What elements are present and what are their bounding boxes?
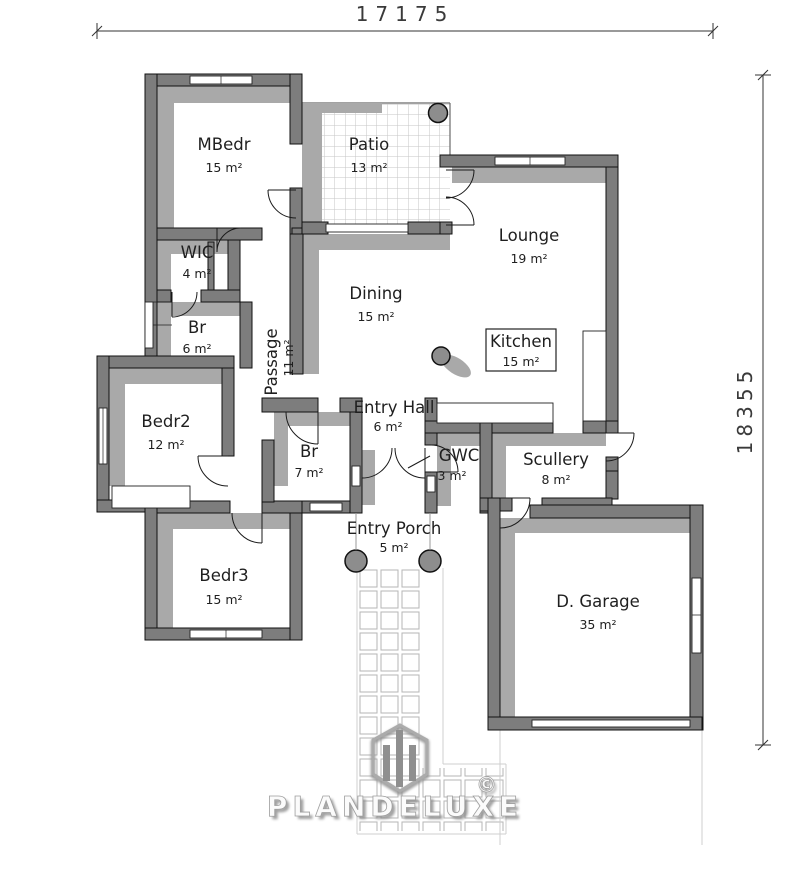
room-label-patio: Patio xyxy=(349,135,389,154)
room-area-bedr2: 12 m² xyxy=(147,437,184,452)
room-label-scullery: Scullery xyxy=(523,450,589,469)
room-label-bedr3: Bedr3 xyxy=(199,566,248,585)
room-label-mbedr: MBedr xyxy=(198,135,251,154)
room-area-dining: 15 m² xyxy=(357,309,394,324)
room-area-patio: 13 m² xyxy=(350,160,387,175)
room-label-bedr2: Bedr2 xyxy=(141,412,190,431)
room-area-passage: 11 m² xyxy=(281,339,296,376)
floor-plan-svg: MBedr 15 m² Patio 13 m² Lounge 19 m² WIC… xyxy=(0,0,800,878)
room-area-gwc: 3 m² xyxy=(437,468,466,483)
copyright-symbol: © xyxy=(476,773,497,797)
room-area-mbedr: 15 m² xyxy=(205,160,242,175)
room-area-bedr3: 15 m² xyxy=(205,592,242,607)
room-area-lounge: 19 m² xyxy=(510,251,547,266)
room-label-entry-hall: Entry Hall xyxy=(354,398,435,417)
dimension-right-label: 18355 xyxy=(733,366,757,455)
gwc-leader-line xyxy=(408,456,430,468)
room-label-kitchen: Kitchen xyxy=(490,332,552,351)
dimension-top-label: 17175 xyxy=(356,2,455,26)
room-label-garage: D. Garage xyxy=(556,592,640,611)
room-label-br6: Br xyxy=(188,318,206,337)
room-label-entry-porch: Entry Porch xyxy=(347,519,442,538)
floor-plan-sheet: MBedr 15 m² Patio 13 m² Lounge 19 m² WIC… xyxy=(0,0,800,878)
room-label-gwc: GWC xyxy=(439,446,480,465)
watermark: PLANDELUXE PLANDELUXE © © xyxy=(267,725,526,826)
room-label-passage: Passage xyxy=(262,328,281,395)
room-area-garage: 35 m² xyxy=(579,617,616,632)
room-label-br7: Br xyxy=(300,442,318,461)
room-label-lounge: Lounge xyxy=(499,226,560,245)
room-area-entry-hall: 6 m² xyxy=(373,419,402,434)
room-area-scullery: 8 m² xyxy=(541,472,570,487)
room-label-wic: WIC xyxy=(181,243,214,262)
room-label-dining: Dining xyxy=(349,284,402,303)
room-area-kitchen: 15 m² xyxy=(502,354,539,369)
room-area-entry-porch: 5 m² xyxy=(379,540,408,555)
room-area-br6: 6 m² xyxy=(182,341,211,356)
room-area-br7: 7 m² xyxy=(294,465,323,480)
room-area-wic: 4 m² xyxy=(182,266,211,281)
